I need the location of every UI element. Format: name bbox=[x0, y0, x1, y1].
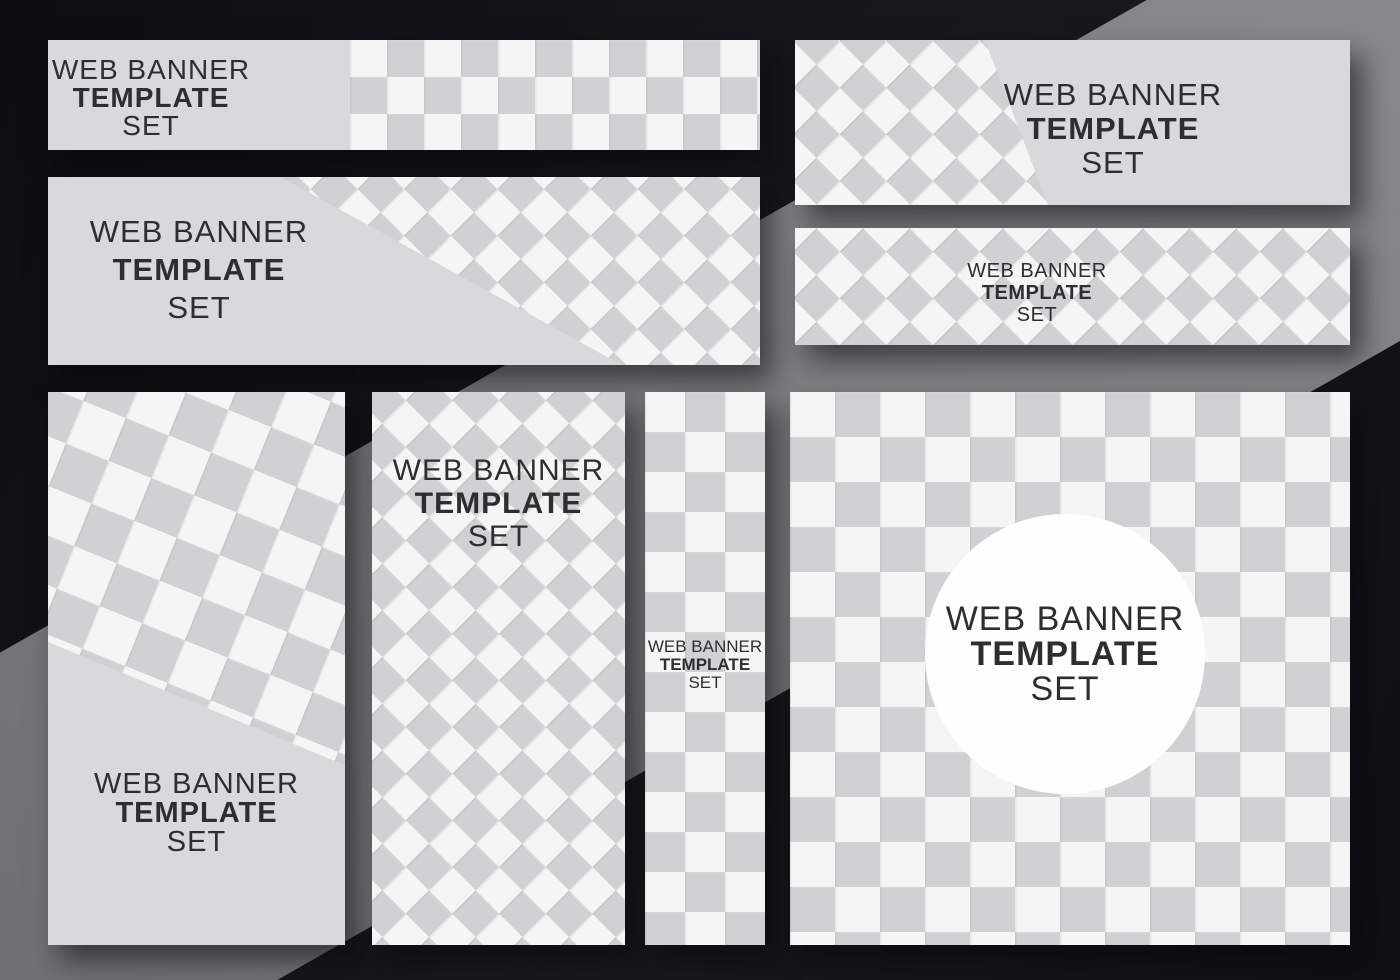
banner-title-line1: WEB BANNER bbox=[973, 78, 1253, 112]
banner-left-large-leaderboard: WEB BANNER TEMPLATE SET bbox=[48, 177, 760, 365]
center-circle: WEB BANNER TEMPLATE SET bbox=[925, 514, 1205, 794]
banner-top-right: WEB BANNER TEMPLATE SET bbox=[795, 40, 1350, 205]
banner-title-line2: TEMPLATE bbox=[897, 282, 1177, 304]
mockup-canvas: WEB BANNER TEMPLATE SET WEB BANNER TEMPL… bbox=[0, 0, 1400, 980]
banner-square: WEB BANNER TEMPLATE SET bbox=[790, 392, 1350, 945]
banner-title-line2: TEMPLATE bbox=[50, 84, 252, 112]
banner-title: WEB BANNER TEMPLATE SET bbox=[48, 770, 345, 857]
banner-title-line1: WEB BANNER bbox=[897, 260, 1177, 282]
banner-title-line1: WEB BANNER bbox=[645, 638, 765, 656]
checker-pattern bbox=[350, 40, 760, 150]
banner-title: WEB BANNER TEMPLATE SET bbox=[372, 454, 625, 553]
banner-right-slim: WEB BANNER TEMPLATE SET bbox=[795, 228, 1350, 345]
banner-title: WEB BANNER TEMPLATE SET bbox=[897, 260, 1177, 326]
banner-title-line3: SET bbox=[48, 828, 345, 857]
banner-title-line1: WEB BANNER bbox=[50, 56, 252, 84]
banner-title-line2: TEMPLATE bbox=[372, 487, 625, 520]
banner-title-line1: WEB BANNER bbox=[372, 454, 625, 487]
banner-title-line3: SET bbox=[925, 672, 1205, 707]
banner-title-line3: SET bbox=[50, 112, 252, 140]
banner-title: WEB BANNER TEMPLATE SET bbox=[645, 638, 765, 692]
tilted-checker-pattern bbox=[48, 392, 345, 945]
banner-skyscraper: WEB BANNER TEMPLATE SET bbox=[645, 392, 765, 945]
banner-title: WEB BANNER TEMPLATE SET bbox=[973, 78, 1253, 180]
banner-title-line1: WEB BANNER bbox=[925, 602, 1205, 637]
banner-title-line3: SET bbox=[48, 289, 350, 327]
banner-title-line2: TEMPLATE bbox=[48, 251, 350, 289]
banner-title-line2: TEMPLATE bbox=[973, 112, 1253, 146]
banner-title-line1: WEB BANNER bbox=[48, 770, 345, 799]
banner-title: WEB BANNER TEMPLATE SET bbox=[50, 56, 252, 140]
banner-middle-vertical: WEB BANNER TEMPLATE SET bbox=[372, 392, 625, 945]
banner-title: WEB BANNER TEMPLATE SET bbox=[925, 602, 1205, 707]
banner-title-line1: WEB BANNER bbox=[48, 213, 350, 251]
banner-title-line2: TEMPLATE bbox=[48, 799, 345, 828]
banner-title-line3: SET bbox=[897, 304, 1177, 326]
banner-title-line3: SET bbox=[372, 520, 625, 553]
banner-title-line2: TEMPLATE bbox=[925, 637, 1205, 672]
banner-top-left-leaderboard: WEB BANNER TEMPLATE SET bbox=[48, 40, 760, 150]
banner-title-line3: SET bbox=[973, 146, 1253, 180]
banner-title-line2: TEMPLATE bbox=[645, 656, 765, 674]
banner-title-line3: SET bbox=[645, 674, 765, 692]
banner-title: WEB BANNER TEMPLATE SET bbox=[48, 213, 350, 327]
banner-left-vertical: WEB BANNER TEMPLATE SET bbox=[48, 392, 345, 945]
